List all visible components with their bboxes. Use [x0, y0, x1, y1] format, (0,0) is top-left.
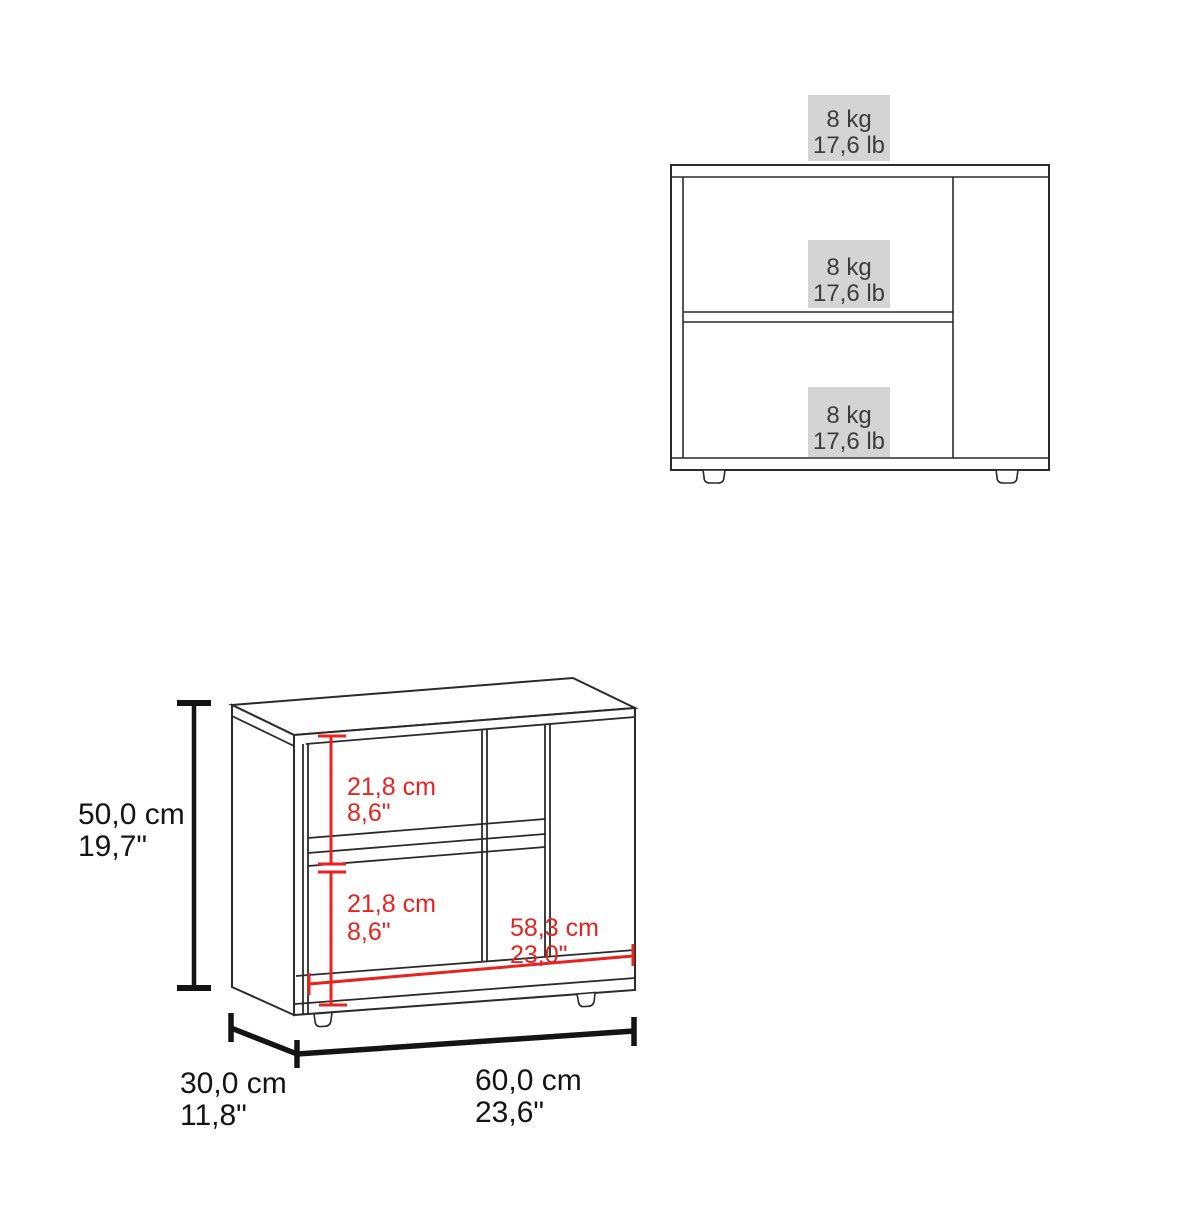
load-badge-lower-shelf-kg: 8 kg	[826, 402, 871, 429]
width-dimension-label-imperial: 23,6"	[475, 1096, 544, 1129]
load-badge-top: 8 kg 17,6 lb	[808, 95, 890, 161]
perspective-view-diagram: 50,0 cm 19,7" 30,0 cm 11,8" 60,0 cm 23,6…	[78, 678, 635, 1132]
width-dimension-label-metric: 60,0 cm	[475, 1064, 582, 1097]
front-right-foot	[996, 470, 1018, 483]
height-dimension-label-metric: 50,0 cm	[78, 798, 185, 831]
lower-shelf-label-imperial: 8,6"	[347, 918, 391, 946]
upper-shelf-label-metric: 21,8 cm	[347, 773, 436, 801]
front-view-diagram: 8 kg 17,6 lb 8 kg 17,6 lb 8 kg 17,6 lb	[671, 95, 1049, 483]
load-badge-top-lb: 17,6 lb	[813, 132, 885, 159]
load-badge-top-kg: 8 kg	[826, 106, 871, 133]
load-badge-lower-shelf: 8 kg 17,6 lb	[808, 387, 890, 457]
depth-dimension-label-imperial: 11,8"	[180, 1099, 247, 1132]
load-badge-upper-shelf: 8 kg 17,6 lb	[808, 240, 890, 308]
load-badge-lower-shelf-lb: 17,6 lb	[813, 428, 885, 455]
persp-left-foot	[314, 1013, 332, 1027]
depth-dimension-label-metric: 30,0 cm	[180, 1067, 287, 1100]
width-dimension: 60,0 cm 23,6"	[297, 1017, 634, 1129]
front-left-foot	[703, 470, 725, 483]
height-dimension-label-imperial: 19,7"	[78, 830, 147, 863]
persp-right-foot	[577, 993, 595, 1007]
load-badge-upper-shelf-lb: 17,6 lb	[813, 280, 885, 307]
depth-dimension: 30,0 cm 11,8"	[180, 1013, 297, 1132]
dimension-diagram-canvas: 8 kg 17,6 lb 8 kg 17,6 lb 8 kg 17,6 lb	[0, 0, 1200, 1200]
interior-width-label-imperial: 23,0"	[510, 941, 568, 969]
interior-width-label-metric: 58,3 cm	[510, 914, 599, 942]
load-badge-upper-shelf-kg: 8 kg	[826, 254, 871, 281]
persp-front-face	[294, 708, 635, 1015]
persp-left-side-face	[232, 705, 294, 1015]
upper-shelf-label-imperial: 8,6"	[347, 799, 391, 827]
depth-dimension-line	[231, 1028, 297, 1054]
lower-shelf-label-metric: 21,8 cm	[347, 890, 436, 918]
height-dimension: 50,0 cm 19,7"	[78, 703, 211, 988]
width-dimension-line	[297, 1031, 634, 1054]
product-dimension-sheet: 8 kg 17,6 lb 8 kg 17,6 lb 8 kg 17,6 lb	[0, 0, 1200, 1200]
